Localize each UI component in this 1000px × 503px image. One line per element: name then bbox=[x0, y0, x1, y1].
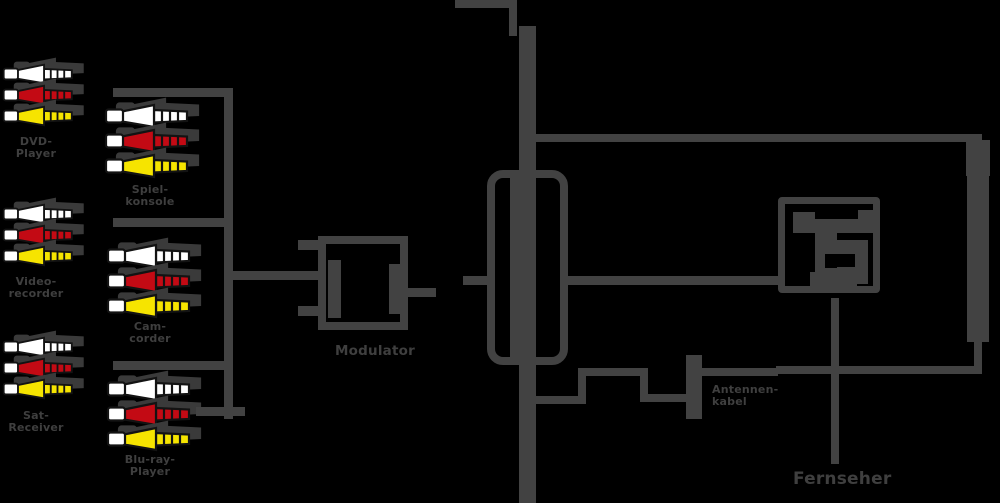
distribution-right-trunk bbox=[967, 170, 989, 342]
source-5-label-line2: corder bbox=[129, 332, 170, 345]
socket-to-tv-line bbox=[831, 298, 839, 464]
source-2-label-line2: recorder bbox=[9, 287, 64, 300]
modulator-prong-bottom bbox=[298, 306, 324, 316]
cable-connector-icon bbox=[686, 355, 702, 419]
rca-plug-white-icon bbox=[106, 242, 194, 270]
rca-plug-red-icon bbox=[106, 400, 194, 428]
rca-plug-yellow-icon bbox=[2, 244, 76, 268]
modulator-label: Modulator bbox=[330, 344, 420, 359]
bus-bottom-hook-line bbox=[196, 407, 245, 416]
rca-plug-group-source-1 bbox=[2, 62, 76, 128]
bracket-line-3 bbox=[113, 361, 233, 370]
antenna-feed-top-line bbox=[455, 0, 517, 8]
source-3-label: Sat- Receiver bbox=[4, 410, 68, 434]
source-4-label: Spiel- konsole bbox=[112, 184, 188, 208]
source-5-label: Cam- corder bbox=[112, 321, 188, 345]
rca-plug-yellow-icon bbox=[106, 292, 194, 320]
rca-plug-red-icon bbox=[104, 127, 192, 155]
distribution-bottom-line bbox=[776, 366, 982, 374]
modulator-left-bar bbox=[328, 260, 341, 318]
distribution-top-line bbox=[536, 134, 982, 142]
source-3-label-line2: Receiver bbox=[8, 421, 63, 434]
rca-plug-white-icon bbox=[104, 102, 192, 130]
modulator-label-text: Modulator bbox=[335, 343, 415, 359]
inline-amplifier-icon bbox=[487, 170, 568, 365]
amplifier-to-socket-line bbox=[568, 276, 778, 285]
bus-to-modulator-line bbox=[233, 271, 320, 280]
rca-plug-white-icon bbox=[106, 375, 194, 403]
cable-step-c bbox=[578, 368, 648, 376]
rca-plug-yellow-icon bbox=[2, 377, 76, 401]
rca-plug-yellow-icon bbox=[2, 104, 76, 128]
rca-plug-group-source-6 bbox=[106, 375, 194, 453]
source-6-label-line2: Player bbox=[130, 465, 170, 478]
socket-glyph-bottom-bar bbox=[810, 272, 857, 286]
collector-bus-line bbox=[224, 88, 233, 419]
rca-plug-yellow-icon bbox=[104, 152, 192, 180]
amplifier-left-stub bbox=[463, 276, 487, 285]
rca-plug-group-source-4 bbox=[104, 102, 192, 180]
source-1-label-line2: Player bbox=[16, 147, 56, 160]
rca-plug-red-icon bbox=[106, 267, 194, 295]
cable-step-g bbox=[702, 368, 778, 376]
socket-glyph-hole bbox=[825, 254, 837, 268]
source-2-label: Video- recorder bbox=[4, 276, 68, 300]
rca-plug-yellow-icon bbox=[106, 425, 194, 453]
modulator-slot bbox=[389, 264, 401, 314]
rca-plug-group-source-2 bbox=[2, 202, 76, 268]
rca-plug-group-source-5 bbox=[106, 242, 194, 320]
antenna-feed-down-line bbox=[509, 0, 517, 36]
source-4-label-line2: konsole bbox=[125, 195, 174, 208]
bracket-line-2 bbox=[113, 218, 233, 227]
socket-glyph-right-riser bbox=[858, 210, 873, 233]
tv-label-text: Fernseher bbox=[793, 469, 891, 489]
antenna-wall-socket-icon bbox=[778, 197, 880, 293]
av-distribution-diagram: DVD- Player Video- recorder Sat- Receive… bbox=[0, 0, 1000, 503]
source-1-label: DVD- Player bbox=[4, 136, 68, 160]
antenna-cable-label: Antennen- kabel bbox=[712, 384, 792, 408]
modulator-prong-top bbox=[298, 240, 324, 250]
source-6-label: Blu-ray- Player bbox=[112, 454, 188, 478]
bracket-line-1 bbox=[113, 88, 233, 97]
tv-label: Fernseher bbox=[793, 470, 888, 489]
modulator-icon bbox=[318, 236, 408, 330]
rca-plug-group-source-3 bbox=[2, 335, 76, 401]
socket-glyph-arm-top bbox=[837, 240, 855, 254]
modulator-output-stub bbox=[402, 288, 436, 297]
antenna-cable-label-line2: kabel bbox=[712, 395, 747, 408]
